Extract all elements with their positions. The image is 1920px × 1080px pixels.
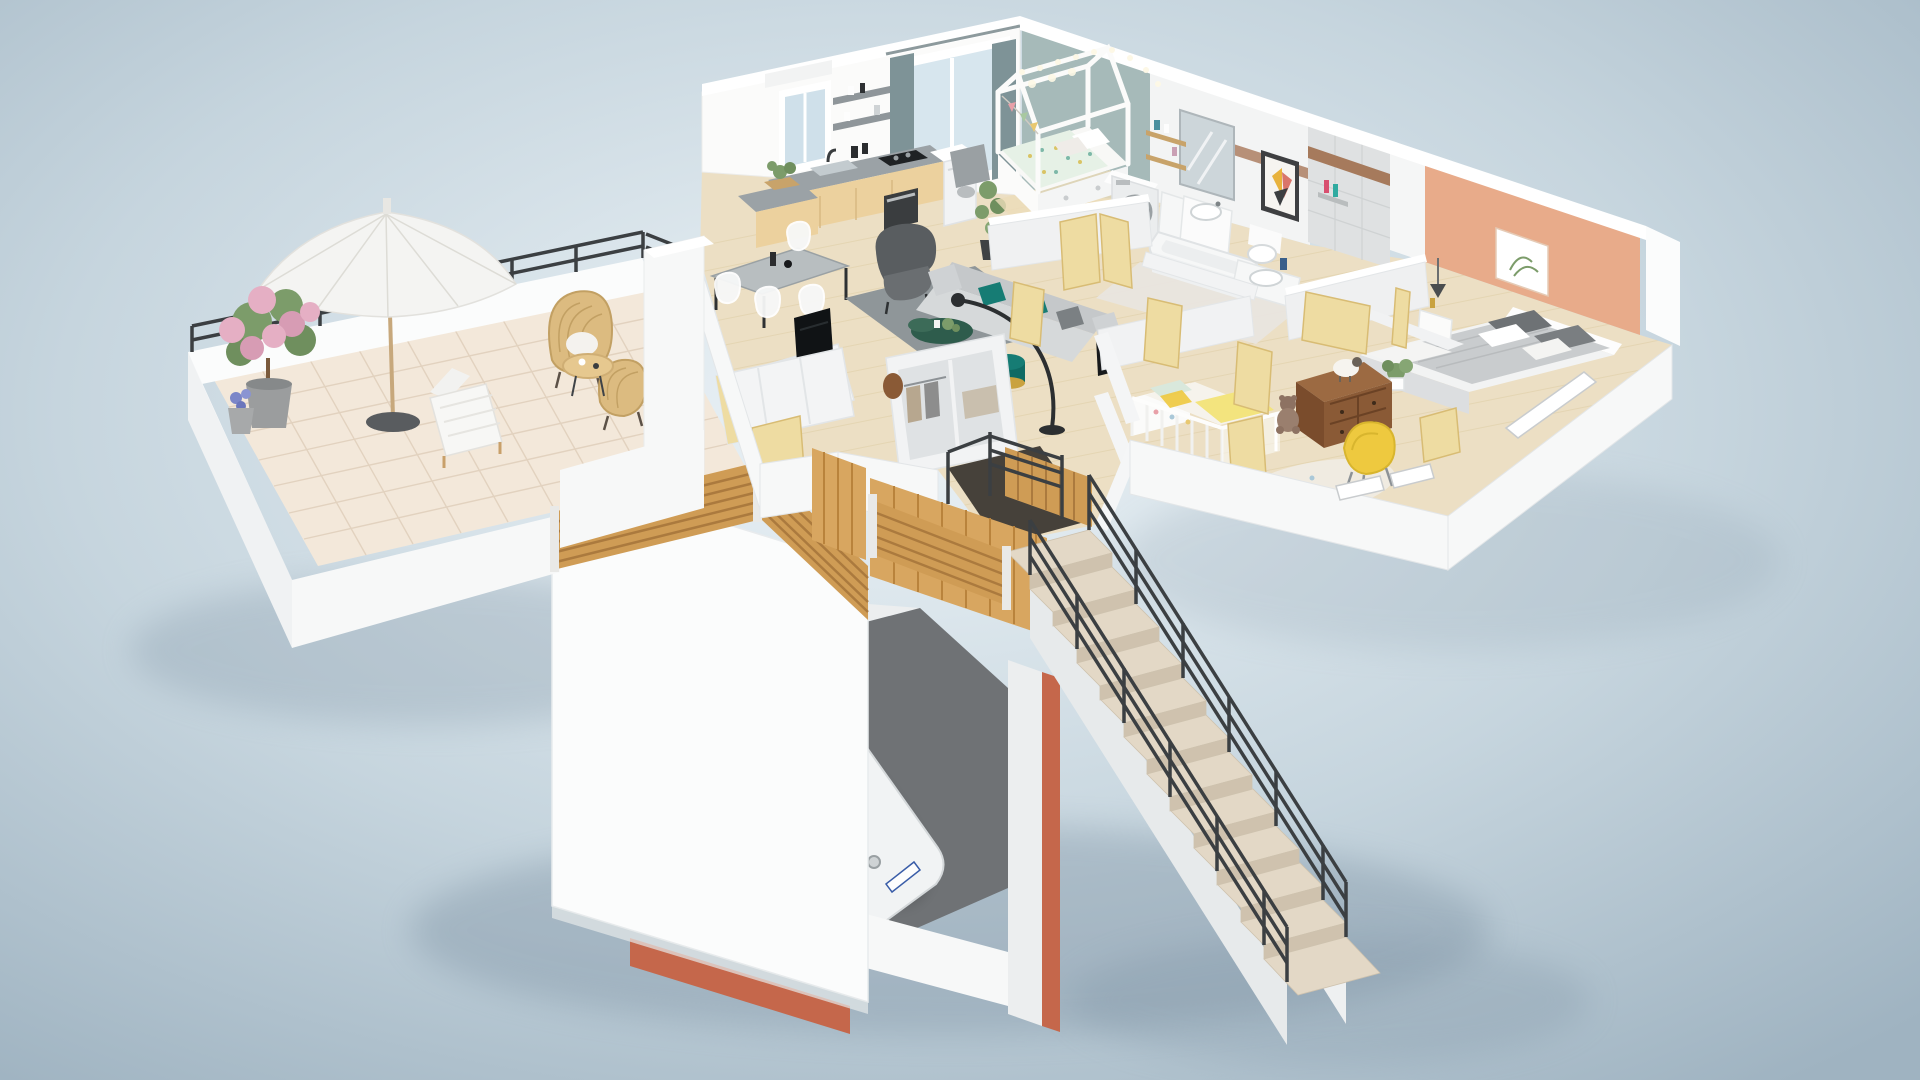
parasol-base — [366, 412, 420, 432]
table-decor-bottle — [770, 252, 776, 266]
parasol-finial — [383, 198, 391, 214]
right-corner-wall — [1646, 226, 1680, 346]
mirror — [1180, 110, 1234, 200]
soap-bottle — [1280, 258, 1287, 270]
door-7 — [1392, 288, 1410, 348]
door-9 — [1420, 408, 1460, 462]
door-1 — [1060, 214, 1100, 290]
plant-pot — [246, 384, 292, 428]
garage-right-wall — [1008, 660, 1042, 1026]
clothes-2 — [924, 381, 940, 419]
clothes-1 — [906, 385, 922, 423]
door-2 — [1100, 214, 1132, 288]
washbasin — [1191, 204, 1221, 220]
abstract-art-frame — [1261, 150, 1299, 222]
bag — [883, 373, 903, 399]
terracotta-edge-strip — [1042, 672, 1060, 1032]
wardrobe — [883, 334, 1018, 476]
master-white-wall — [1390, 148, 1425, 262]
door-3 — [1010, 282, 1044, 346]
door-5 — [1234, 342, 1272, 414]
door-4 — [1144, 298, 1182, 368]
floor-plan-canvas — [0, 0, 1920, 1080]
small-flower-pot — [228, 389, 254, 434]
floor-plan-render — [0, 0, 1920, 1080]
car-brand-badge — [868, 856, 880, 868]
